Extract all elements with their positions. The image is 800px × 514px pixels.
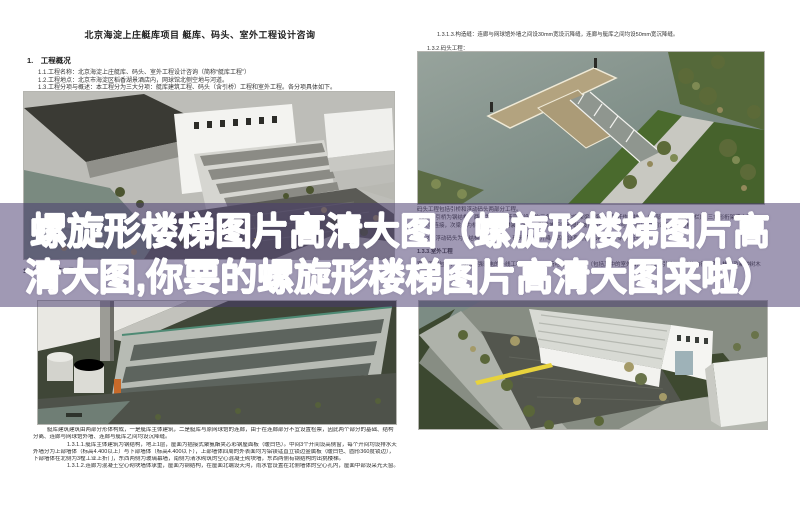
doc-line: 外墙分为上部墙体（标高4.400以上）与下部墙体（标高4.400以下），上部墙体… (33, 449, 397, 456)
caption-overlay: 螺旋形楼梯图片高清大图（螺旋形楼梯图片高 清大图,你要的螺旋形楼梯图片高清大图来… (0, 203, 800, 307)
doc-section-heading: 1. 工程概况 (27, 55, 71, 66)
doc-line: 分离、连廊与网球馆外墙、连廊与艇库之间均设沉降缝。 (33, 434, 397, 441)
rendering-boathouse-closeup (37, 300, 397, 425)
doc-line: 艇库建筑建筑由两部分形体构成，一是艇库主体建筑，二是艇库与原网球馆的连廊，由于在… (33, 427, 397, 434)
article-thumbnail: 北京海淀上庄艇库项目 艇库、码头、室外工程设计咨询 1. 工程概况 1.1.工程… (0, 0, 800, 514)
doc-line: 1.3.工程分项与概述：本工程分为三大分项：艇库建筑工程、码头（含引桥）工程和室… (38, 82, 336, 91)
rendering-site-aerial (418, 300, 768, 430)
doc-line: 1.3.1.1.艇库主体建筑为钢结构，地上1层，屋面为插接式聚氨酯夹芯彩钢屋面板… (33, 442, 397, 449)
doc-title: 北京海淀上庄艇库项目 艇库、码头、室外工程设计咨询 (0, 28, 400, 41)
caption-line-2: 清大图,你要的螺旋形楼梯图片高清大图来啦） (25, 255, 775, 301)
doc-line: 1.3.1.2.连廊为混凝土空心砌块墙体承重，屋面为钢结构，在屋面北端设天沟，雨… (33, 463, 397, 470)
doc-line: 下部墙体在北侧为3樘工业上折门，东西两侧为玻璃幕墙，南侧为清水砌筑的空心混凝土砌… (33, 456, 397, 463)
caption-line-1: 螺旋形楼梯图片高清大图（螺旋形楼梯图片高 (30, 209, 770, 255)
rendering-dock-bridge (417, 51, 765, 205)
doc-paragraph: 艇库建筑建筑由两部分形体构成，一是艇库主体建筑，二是艇库与原网球馆的连廊，由于在… (33, 427, 397, 471)
doc-line: 1.3.1.3.构造缝：连廊与网球馆外墙之间设30mm宽设沉降缝，连廊与艇库之间… (437, 30, 678, 38)
